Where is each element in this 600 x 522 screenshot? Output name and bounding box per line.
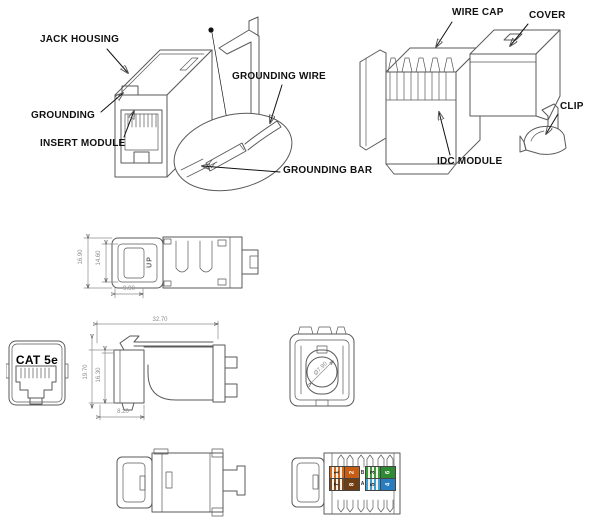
side-view-drawing [78, 313, 250, 429]
up-marking: UP [147, 256, 154, 268]
front-view-drawing [6, 338, 70, 410]
wire-color-cell-pin-7: 7 [330, 479, 344, 490]
dim-side-length: 32.70 [152, 317, 167, 323]
callout-clip: CLIP [560, 102, 584, 112]
dim-side-height-outer: 19.70 [83, 364, 89, 379]
wiring-standard-markers: BA [360, 467, 365, 490]
wire-color-cell-pin-3: 3 [366, 467, 380, 478]
wire-color-cell-pin-2: 2 [345, 467, 359, 478]
dim-side-height-inner: 16.30 [96, 367, 102, 382]
dim-side-depth: 8.20 [117, 409, 129, 415]
callout-insert-module: INSERT MODULE [40, 139, 125, 149]
wire-color-cell-pin-1: 1 [330, 467, 344, 478]
wire-color-cell-pin-5: 5 [366, 479, 380, 490]
dim-top-width: 9.90 [123, 286, 135, 292]
cat5e-marking: CAT 5e [16, 354, 58, 366]
wiring-color-label: 1278BA3654 [330, 467, 395, 490]
dim-top-height-outer: 16.90 [78, 249, 84, 264]
bottom-top-view-drawing [110, 448, 250, 520]
wire-color-cell-pin-8: 8 [345, 479, 359, 490]
callout-grounding: GROUNDING [31, 111, 95, 121]
wire-color-cell-pin-6: 6 [381, 467, 395, 478]
callout-jack-housing: JACK HOUSING [40, 35, 119, 45]
callout-idc-module: IDC MODULE [437, 157, 502, 167]
technical-drawing-sheet: JACK HOUSING GROUNDING INSERT MODULE GRO… [0, 0, 600, 522]
dim-top-height-inner: 14.60 [96, 250, 102, 265]
grounding-wire-locator-dot [208, 27, 213, 32]
wire-color-cell-pin-4: 4 [381, 479, 395, 490]
exploded-left-drawing [0, 0, 348, 208]
callout-wire-cap: WIRE CAP [452, 8, 504, 18]
idc-teeth-bottom [338, 500, 393, 512]
callout-grounding-wire: GROUNDING WIRE [232, 72, 326, 82]
callout-cover: COVER [529, 11, 566, 21]
callout-grounding-bar: GROUNDING BAR [283, 166, 372, 176]
